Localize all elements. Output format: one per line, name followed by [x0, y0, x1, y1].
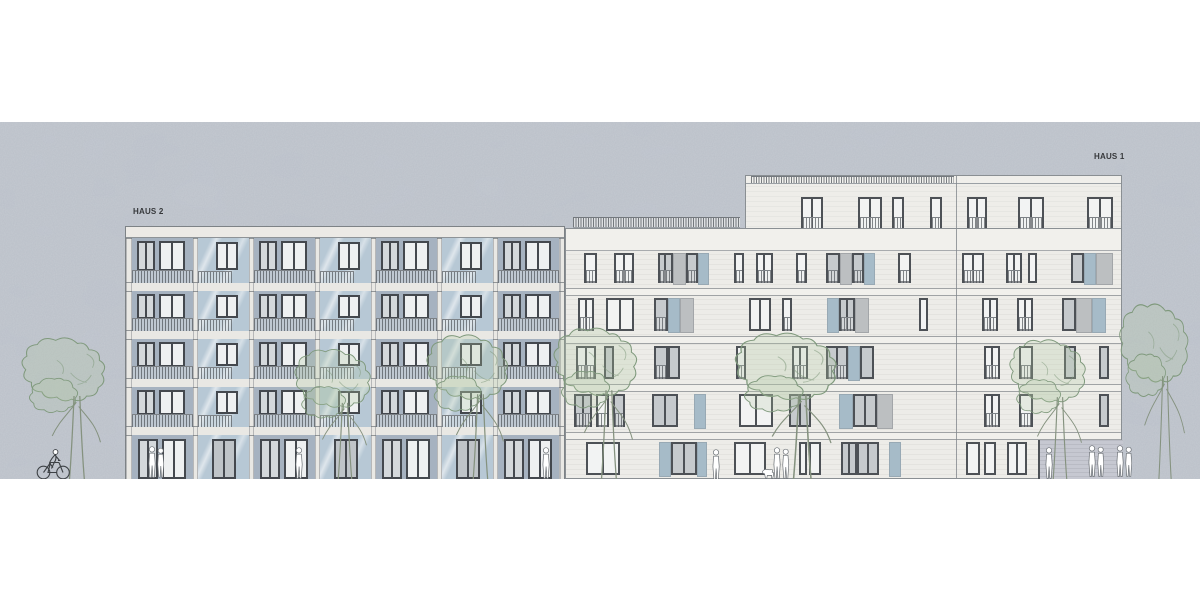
- window-mullion: [223, 441, 225, 477]
- haus1-window: [966, 442, 980, 475]
- penthouse-roof-railing: [751, 176, 954, 184]
- window-mullion: [293, 243, 295, 269]
- window-railing: [1019, 317, 1031, 331]
- haus1-top-band: [566, 229, 1121, 251]
- haus2-bay: [132, 238, 193, 283]
- window-mullion: [145, 344, 147, 365]
- haus2-window: [281, 241, 307, 271]
- window-mullion: [269, 441, 271, 477]
- window-mullion: [267, 392, 269, 413]
- haus2-label: HAUS 2: [133, 207, 164, 216]
- window-railing: [1008, 270, 1020, 283]
- haus2-window: [460, 242, 482, 270]
- pedestrian-solo: [293, 447, 305, 479]
- haus2-window: [137, 342, 155, 367]
- terrace-railing: [573, 217, 740, 228]
- haus2-window: [137, 241, 155, 271]
- window-mullion: [415, 296, 417, 317]
- haus2-bay: [198, 238, 249, 283]
- window-mullion: [511, 296, 513, 317]
- window-mullion: [171, 243, 173, 269]
- pedestrian-solo: [540, 447, 552, 479]
- window-mullion: [171, 344, 173, 365]
- window-railing: [986, 365, 998, 379]
- window-railing: [688, 270, 696, 283]
- facade-panel-blue: [668, 298, 680, 333]
- haus2-bay: [198, 387, 249, 427]
- haus2-window: [159, 241, 185, 271]
- window-railing: [986, 413, 998, 427]
- haus2-parapet: [126, 227, 564, 238]
- haus2-window: [159, 342, 185, 367]
- window-railing: [736, 270, 742, 283]
- haus2-bay: [442, 291, 493, 331]
- haus1-window: [584, 253, 597, 283]
- balcony-railing: [132, 270, 193, 283]
- haus2-window: [503, 294, 521, 319]
- haus1-window: [1071, 253, 1084, 283]
- haus2-window: [137, 390, 155, 415]
- haus1-window: [1062, 298, 1076, 331]
- balcony-railing: [198, 415, 232, 427]
- window-mullion: [226, 393, 228, 412]
- window-mullion: [348, 297, 350, 316]
- window-railing: [854, 270, 862, 283]
- cyclist-figure: [36, 447, 70, 479]
- haus2-bay: [376, 238, 437, 283]
- haus1-window: [614, 253, 634, 283]
- haus2-window: [259, 342, 277, 367]
- haus2-window: [281, 294, 307, 319]
- balcony-railing: [254, 318, 315, 331]
- haus1-window: [962, 253, 984, 283]
- balcony-railing: [198, 367, 232, 379]
- window-mullion: [145, 392, 147, 413]
- pedestrian-duo-dog: [762, 447, 792, 479]
- window-mullion: [415, 392, 417, 413]
- haus1-window: [796, 253, 807, 283]
- haus2-window: [216, 343, 238, 366]
- tree: [293, 345, 398, 479]
- tree: [552, 323, 667, 479]
- haus1-window: [898, 253, 911, 283]
- window-railing: [586, 270, 595, 283]
- haus1-window: [1028, 253, 1037, 283]
- balcony-railing: [320, 319, 354, 331]
- haus1-window: [984, 442, 996, 475]
- haus2-window: [159, 390, 185, 415]
- haus1-label: HAUS 1: [1094, 152, 1125, 161]
- haus1-window: [749, 298, 771, 331]
- window-mullion: [389, 296, 391, 317]
- window-railing: [616, 270, 632, 283]
- window-railing: [758, 270, 771, 283]
- window-mullion: [537, 392, 539, 413]
- haus2-window: [338, 295, 360, 318]
- balcony-railing: [132, 414, 193, 427]
- window-mullion: [171, 296, 173, 317]
- haus2-bay: [132, 291, 193, 331]
- haus2-bay: [198, 339, 249, 379]
- haus2-window: [525, 241, 551, 271]
- haus2-window: [216, 242, 238, 270]
- haus2-bay: [320, 291, 371, 331]
- haus1-window: [658, 253, 673, 283]
- facade-panel-gray: [1076, 298, 1092, 333]
- window-mullion: [389, 243, 391, 269]
- facade-panel-gray: [673, 253, 686, 285]
- haus2-bay: [442, 238, 493, 283]
- haus1-floor-band: [566, 288, 1121, 296]
- haus1-window: [782, 298, 792, 331]
- balcony-railing: [442, 271, 476, 283]
- haus2-window: [137, 294, 155, 319]
- facade-panel-blue: [889, 442, 901, 477]
- window-mullion: [417, 441, 419, 477]
- window-mullion: [511, 243, 513, 269]
- facade-panel-blue: [697, 442, 707, 477]
- window-mullion: [293, 296, 295, 317]
- balcony-railing: [198, 271, 232, 283]
- haus1-window: [852, 253, 864, 283]
- window-mullion: [348, 244, 350, 268]
- window-mullion: [470, 244, 472, 268]
- haus2-door: [260, 439, 280, 479]
- pedestrian-duo: [1086, 445, 1107, 478]
- window-railing: [660, 270, 671, 283]
- pedestrian-duo: [146, 446, 167, 479]
- pedestrian-solo: [1043, 447, 1055, 479]
- facade-panel-blue: [694, 394, 706, 429]
- window-mullion: [415, 243, 417, 269]
- haus2-bay: [254, 291, 315, 331]
- haus1-window: [1006, 253, 1022, 283]
- window-mullion: [415, 344, 417, 365]
- haus2-bay: [198, 435, 249, 479]
- facade-panel-blue: [698, 253, 709, 285]
- haus2-window: [525, 294, 551, 319]
- balcony-railing: [320, 271, 354, 283]
- tree: [733, 328, 873, 479]
- facade-panel-blue: [1084, 253, 1096, 285]
- window-mullion: [145, 296, 147, 317]
- haus2-window: [381, 294, 399, 319]
- window-mullion: [537, 344, 539, 365]
- window-mullion: [759, 300, 761, 329]
- elevation-scene: HAUS 2 HAUS 1: [0, 122, 1200, 479]
- window-mullion: [171, 392, 173, 413]
- window-railing: [798, 270, 805, 283]
- haus1-window: [671, 442, 697, 475]
- haus1-window: [984, 394, 1000, 427]
- balcony-railing: [198, 319, 232, 331]
- haus1-window: [982, 298, 998, 331]
- pedestrian-duo: [1114, 445, 1135, 478]
- haus2-window: [403, 294, 429, 319]
- haus2-bay: [376, 291, 437, 331]
- balcony-railing: [132, 366, 193, 379]
- haus1-window: [826, 253, 840, 283]
- facade-panel-blue: [864, 253, 875, 285]
- elevation-drawing: HAUS 2 HAUS 1: [0, 0, 1200, 600]
- haus1-window: [839, 298, 855, 331]
- window-mullion: [145, 243, 147, 269]
- haus2-bay: [498, 291, 559, 331]
- facade-panel-blue: [1092, 298, 1106, 333]
- haus2-window: [216, 295, 238, 318]
- haus1-window: [734, 253, 744, 283]
- window-mullion: [173, 441, 175, 477]
- window-mullion: [537, 243, 539, 269]
- haus2-window: [403, 241, 429, 271]
- haus1-window: [756, 253, 773, 283]
- haus2-bay: [254, 238, 315, 283]
- window-mullion: [470, 297, 472, 316]
- haus2-window: [460, 295, 482, 318]
- balcony-railing: [132, 318, 193, 331]
- window-railing: [828, 270, 838, 283]
- window-railing: [984, 317, 996, 331]
- window-mullion: [683, 444, 685, 473]
- haus2-window: [159, 294, 185, 319]
- facade-panel-gray: [840, 253, 852, 285]
- haus1-window: [1017, 298, 1033, 331]
- window-mullion: [537, 296, 539, 317]
- window-mullion: [267, 296, 269, 317]
- balcony-railing: [498, 270, 559, 283]
- balcony-railing: [254, 270, 315, 283]
- window-mullion: [226, 297, 228, 316]
- haus2-bay: [132, 387, 193, 427]
- haus2-window: [259, 390, 277, 415]
- pedestrian-solo: [710, 449, 722, 479]
- window-railing: [964, 270, 982, 283]
- window-mullion: [226, 345, 228, 364]
- haus2-bay: [320, 238, 371, 283]
- tree: [425, 330, 537, 479]
- haus1-joint-line: [956, 229, 957, 478]
- haus1-window: [984, 346, 1000, 379]
- haus2-window: [216, 391, 238, 414]
- window-mullion: [226, 244, 228, 268]
- facade-panel-gray: [1096, 253, 1113, 285]
- haus2-window: [503, 241, 521, 271]
- facade-panel-gray: [680, 298, 694, 333]
- balcony-railing: [376, 270, 437, 283]
- haus2-window: [259, 241, 277, 271]
- window-mullion: [267, 243, 269, 269]
- haus2-bay: [198, 291, 249, 331]
- haus1-window: [686, 253, 698, 283]
- facade-panel-gray: [877, 394, 893, 429]
- haus2-window: [381, 241, 399, 271]
- window-mullion: [267, 344, 269, 365]
- window-railing: [900, 270, 909, 283]
- haus2-bay: [498, 238, 559, 283]
- haus1-window: [919, 298, 928, 331]
- haus2-bay: [132, 339, 193, 379]
- haus2-window: [338, 242, 360, 270]
- haus1-window: [668, 346, 680, 379]
- haus2-window: [259, 294, 277, 319]
- haus2-door: [212, 439, 236, 479]
